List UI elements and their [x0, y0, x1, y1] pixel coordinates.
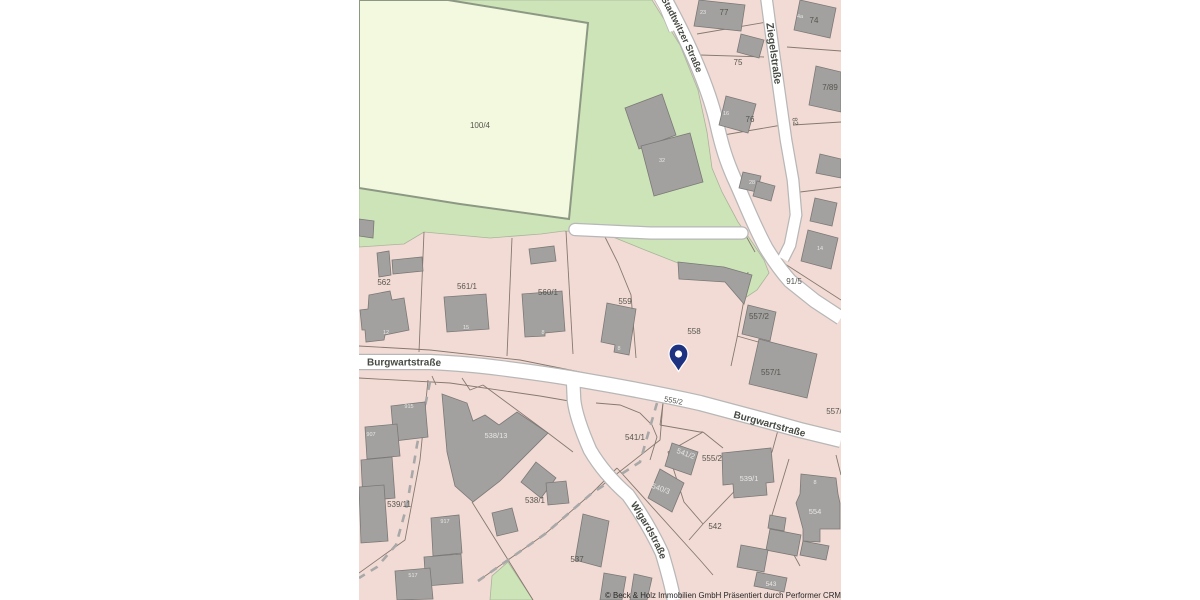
svg-text:539/1: 539/1 — [740, 474, 759, 483]
svg-text:23: 23 — [700, 10, 706, 16]
svg-text:7/89: 7/89 — [822, 83, 838, 92]
svg-text:907: 907 — [366, 432, 375, 438]
svg-text:560/1: 560/1 — [538, 288, 559, 297]
svg-text:539/11: 539/11 — [387, 500, 411, 509]
svg-text:8: 8 — [617, 346, 620, 352]
svg-text:15: 15 — [463, 325, 469, 331]
svg-text:8: 8 — [813, 480, 816, 486]
svg-text:100/4: 100/4 — [470, 121, 491, 130]
svg-text:542: 542 — [708, 522, 722, 531]
svg-text:554: 554 — [809, 507, 822, 516]
svg-text:562: 562 — [377, 278, 391, 287]
svg-text:537: 537 — [570, 555, 584, 564]
svg-text:8: 8 — [541, 330, 544, 336]
svg-text:538/1: 538/1 — [525, 496, 546, 505]
svg-text:561/1: 561/1 — [457, 282, 478, 291]
svg-text:557/2: 557/2 — [749, 312, 770, 321]
svg-text:Burgwartstraße: Burgwartstraße — [367, 357, 442, 369]
svg-text:12: 12 — [383, 330, 389, 336]
svg-text:© Beck & Holz Immobilien GmbH: © Beck & Holz Immobilien GmbH Präsentier… — [605, 590, 841, 600]
svg-text:538/13: 538/13 — [485, 431, 508, 440]
svg-text:75: 75 — [734, 58, 743, 67]
svg-text:557/1: 557/1 — [761, 368, 782, 377]
svg-text:32: 32 — [659, 158, 665, 164]
svg-text:557/: 557/ — [826, 407, 842, 416]
svg-text:16: 16 — [723, 111, 729, 117]
svg-text:917: 917 — [440, 519, 449, 525]
svg-text:517: 517 — [408, 573, 417, 579]
svg-text:555/2: 555/2 — [702, 454, 723, 463]
svg-text:543: 543 — [766, 581, 777, 588]
svg-text:28: 28 — [749, 180, 755, 186]
svg-text:558: 558 — [687, 327, 701, 336]
svg-text:541/1: 541/1 — [625, 433, 646, 442]
svg-text:559: 559 — [618, 297, 632, 306]
svg-text:77: 77 — [720, 8, 729, 17]
svg-text:91/5: 91/5 — [786, 277, 802, 286]
svg-text:4a: 4a — [797, 14, 804, 20]
svg-text:74: 74 — [810, 16, 819, 25]
svg-text:915: 915 — [404, 404, 413, 410]
svg-text:76: 76 — [746, 115, 755, 124]
svg-text:14: 14 — [817, 246, 823, 252]
